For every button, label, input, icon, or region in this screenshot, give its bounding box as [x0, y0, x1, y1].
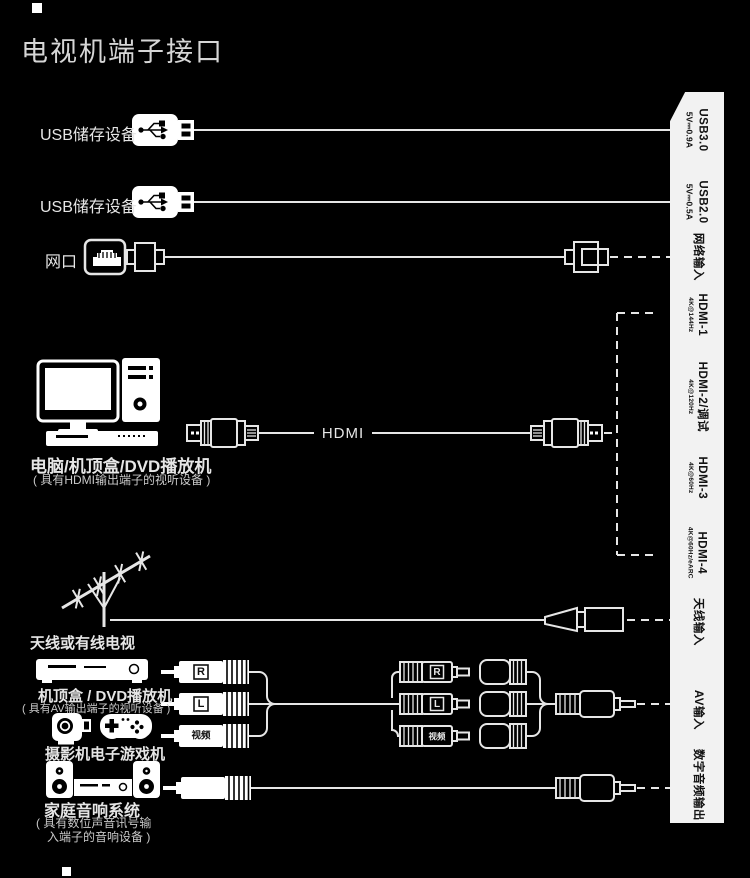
rca-plug-red-icon — [161, 660, 249, 684]
camera-label: 摄影机 — [45, 743, 90, 764]
rca-socket-icon — [480, 660, 526, 684]
game-controller-icon — [100, 714, 152, 739]
audio-cable-graphics — [163, 775, 670, 801]
lan-device-label: 网口 — [45, 248, 77, 272]
pc-tower-icon — [122, 358, 160, 422]
rj45-plug-right-icon — [565, 242, 608, 272]
av-output-plug-icon — [556, 691, 635, 717]
panel-port-av: AV输入 — [670, 681, 724, 739]
panel-port-hdmi1: HDMI-14K@144Hz — [670, 286, 724, 344]
panel-port-network: 网络输入 — [670, 228, 724, 286]
rca-socket-icon — [480, 692, 526, 716]
panel-port-digital-audio: 数字音频输出 — [670, 756, 724, 814]
rca-label-video: 视频 — [191, 730, 211, 742]
rca-plug-white-icon — [161, 692, 249, 716]
hdmi-connector-icon — [187, 419, 258, 447]
camcorder-icon — [52, 713, 91, 745]
hdmi-device-sublabel: ( 具有HDMI输出端子的视听设备 ) — [33, 471, 210, 488]
av-device-sublabel: ( 具有AV输出端子的视听设备 ) — [22, 700, 170, 716]
rca-label-video: 视频 — [428, 732, 446, 742]
rca-label-r: R — [197, 666, 205, 678]
game-console-label: 电子游戏机 — [90, 743, 165, 764]
panel-port-hdmi3: HDMI-34K@60Hz — [670, 449, 724, 507]
av-rca-graphics: R L 视频 R L 视频 — [161, 660, 670, 748]
rca-socket-icon — [480, 724, 526, 748]
panel-port-usb2: USB2.05V⎓0.5A — [670, 173, 724, 231]
usb-plug-icon — [132, 186, 194, 218]
panel-port-hdmi2: HDMI-2/调试4K@120Hz — [670, 368, 724, 426]
dvd-player-icon — [46, 431, 158, 446]
rj45-plug-icon — [127, 243, 164, 271]
tv-ports-diagram: 电视机端子接口 — [0, 0, 750, 878]
panel-port-usb3: USB3.05V⎓0.9A — [670, 101, 724, 159]
audio-device-sublabel-2: 入端子的音响设备 ) — [47, 828, 150, 845]
rca-label-r: R — [433, 667, 441, 678]
hdmi-connector-icon — [531, 419, 602, 447]
usb2-row-graphics — [132, 186, 675, 218]
hdmi-cable-label: HDMI — [315, 425, 371, 442]
audio-rca-plug-icon — [163, 776, 251, 800]
antenna-icon — [62, 551, 150, 627]
coax-connector-icon — [545, 608, 623, 631]
usb3-row-graphics — [132, 114, 676, 146]
rca-label-l: L — [434, 699, 440, 710]
panel-port-hdmi4: HDMI-44K@60Hz/eARC — [670, 524, 724, 582]
tv-port-panel: USB3.05V⎓0.9A USB2.05V⎓0.5A 网络输入 HDMI-14… — [670, 92, 724, 823]
audio-output-plug-icon — [556, 775, 635, 801]
home-audio-icon — [46, 761, 160, 798]
av-dvd-player-icon — [36, 659, 148, 683]
usb2-device-label: USB储存设备 — [40, 193, 137, 217]
antenna-label: 天线或有线电视 — [30, 632, 135, 653]
usb3-device-label: USB储存设备 — [40, 121, 137, 145]
hdmi-cable-graphics — [187, 313, 658, 555]
panel-port-antenna: 天线输入 — [670, 593, 724, 651]
network-row-graphics — [85, 240, 670, 274]
usb-plug-icon — [132, 114, 194, 146]
rca-label-l: L — [198, 698, 205, 710]
computer-device-icon — [38, 358, 160, 446]
antenna-cable-graphics — [110, 608, 670, 631]
ethernet-port-icon — [85, 240, 125, 274]
